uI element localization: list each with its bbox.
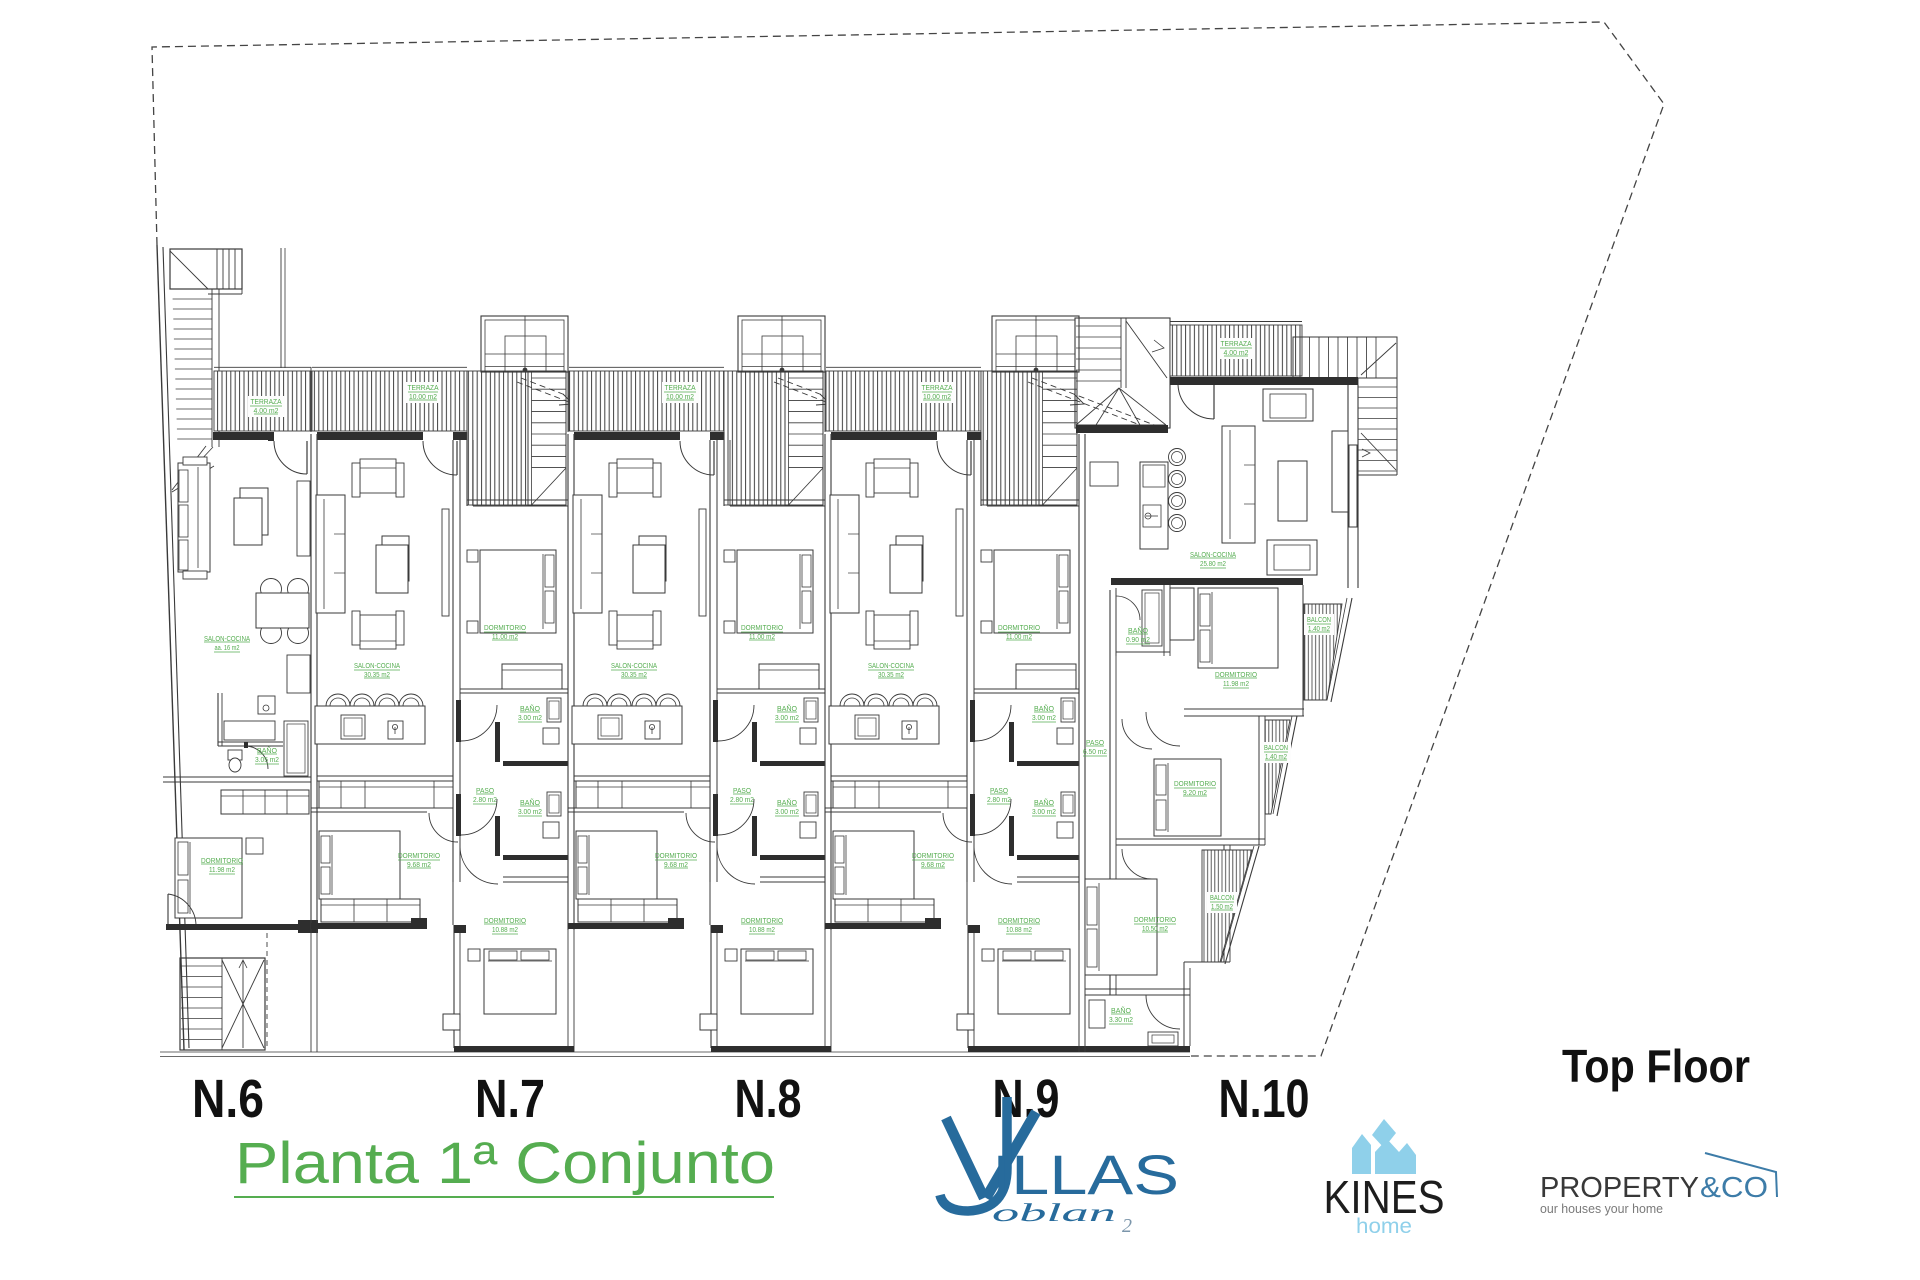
svg-text:2: 2 — [1122, 1215, 1132, 1237]
svg-text:SALON-COCINA: SALON-COCINA — [868, 661, 914, 670]
svg-text:10.88 m2: 10.88 m2 — [1006, 925, 1032, 934]
svg-text:aa. 16 m2: aa. 16 m2 — [215, 643, 240, 652]
svg-text:our houses your home: our houses your home — [1540, 1201, 1663, 1216]
svg-text:DORMITORIO: DORMITORIO — [484, 623, 526, 632]
svg-text:10.88 m2: 10.88 m2 — [749, 925, 775, 934]
svg-text:3.00 m2: 3.00 m2 — [1032, 807, 1056, 816]
svg-text:3.00 m2: 3.00 m2 — [518, 713, 542, 722]
svg-text:6.50 m2: 6.50 m2 — [1083, 747, 1107, 756]
svg-text:3.00 m2: 3.00 m2 — [775, 713, 799, 722]
svg-text:BALCON: BALCON — [1264, 743, 1288, 752]
svg-text:DORMITORIO: DORMITORIO — [1174, 779, 1216, 788]
svg-text:DORMITORIO: DORMITORIO — [655, 851, 697, 860]
svg-text:ILLAS: ILLAS — [992, 1143, 1179, 1206]
svg-text:PROPERTY: PROPERTY — [1540, 1172, 1699, 1204]
svg-text:TERRAZA: TERRAZA — [408, 383, 439, 392]
svg-text:oblan: oblan — [992, 1200, 1116, 1227]
svg-text:DORMITORIO: DORMITORIO — [1134, 915, 1176, 924]
svg-text:DORMITORIO: DORMITORIO — [912, 851, 954, 860]
svg-text:3.00 m2: 3.00 m2 — [775, 807, 799, 816]
svg-text:25.80 m2: 25.80 m2 — [1200, 559, 1226, 568]
svg-text:2.80 m2: 2.80 m2 — [730, 795, 754, 804]
svg-text:DORMITORIO: DORMITORIO — [998, 623, 1040, 632]
svg-text:BALCON: BALCON — [1210, 893, 1234, 902]
svg-text:Planta 1ª Conjunto: Planta 1ª Conjunto — [235, 1131, 775, 1196]
svg-text:TERRAZA: TERRAZA — [922, 383, 953, 392]
svg-text:3.05 m2: 3.05 m2 — [255, 755, 279, 764]
svg-text:Top Floor: Top Floor — [1562, 1040, 1750, 1092]
svg-text:N.8: N.8 — [735, 1069, 802, 1129]
svg-text:2.80 m2: 2.80 m2 — [473, 795, 497, 804]
svg-text:0.90 m2: 0.90 m2 — [1126, 635, 1150, 644]
svg-text:SALON-COCINA: SALON-COCINA — [354, 661, 400, 670]
svg-text:3.00 m2: 3.00 m2 — [1032, 713, 1056, 722]
svg-text:N.7: N.7 — [475, 1069, 545, 1129]
svg-text:SALON-COCINA: SALON-COCINA — [611, 661, 657, 670]
svg-text:TERRAZA: TERRAZA — [1221, 339, 1252, 348]
svg-text:2.80 m2: 2.80 m2 — [987, 795, 1011, 804]
svg-text:N.10: N.10 — [1219, 1069, 1310, 1129]
svg-text:N.6: N.6 — [192, 1069, 264, 1129]
svg-text:3.00 m2: 3.00 m2 — [518, 807, 542, 816]
svg-text:DORMITORIO: DORMITORIO — [398, 851, 440, 860]
svg-text:TERRAZA: TERRAZA — [251, 397, 282, 406]
svg-text:home: home — [1356, 1215, 1412, 1238]
svg-text:TERRAZA: TERRAZA — [665, 383, 696, 392]
svg-text:DORMITORIO: DORMITORIO — [741, 623, 783, 632]
svg-text:11.98 m2: 11.98 m2 — [1223, 679, 1249, 688]
svg-text:10.88 m2: 10.88 m2 — [492, 925, 518, 934]
svg-text:11.98 m2: 11.98 m2 — [209, 865, 235, 874]
svg-text:BALCON: BALCON — [1307, 615, 1331, 624]
svg-text:3.30 m2: 3.30 m2 — [1109, 1015, 1133, 1024]
svg-text:&CO: &CO — [1700, 1172, 1768, 1204]
